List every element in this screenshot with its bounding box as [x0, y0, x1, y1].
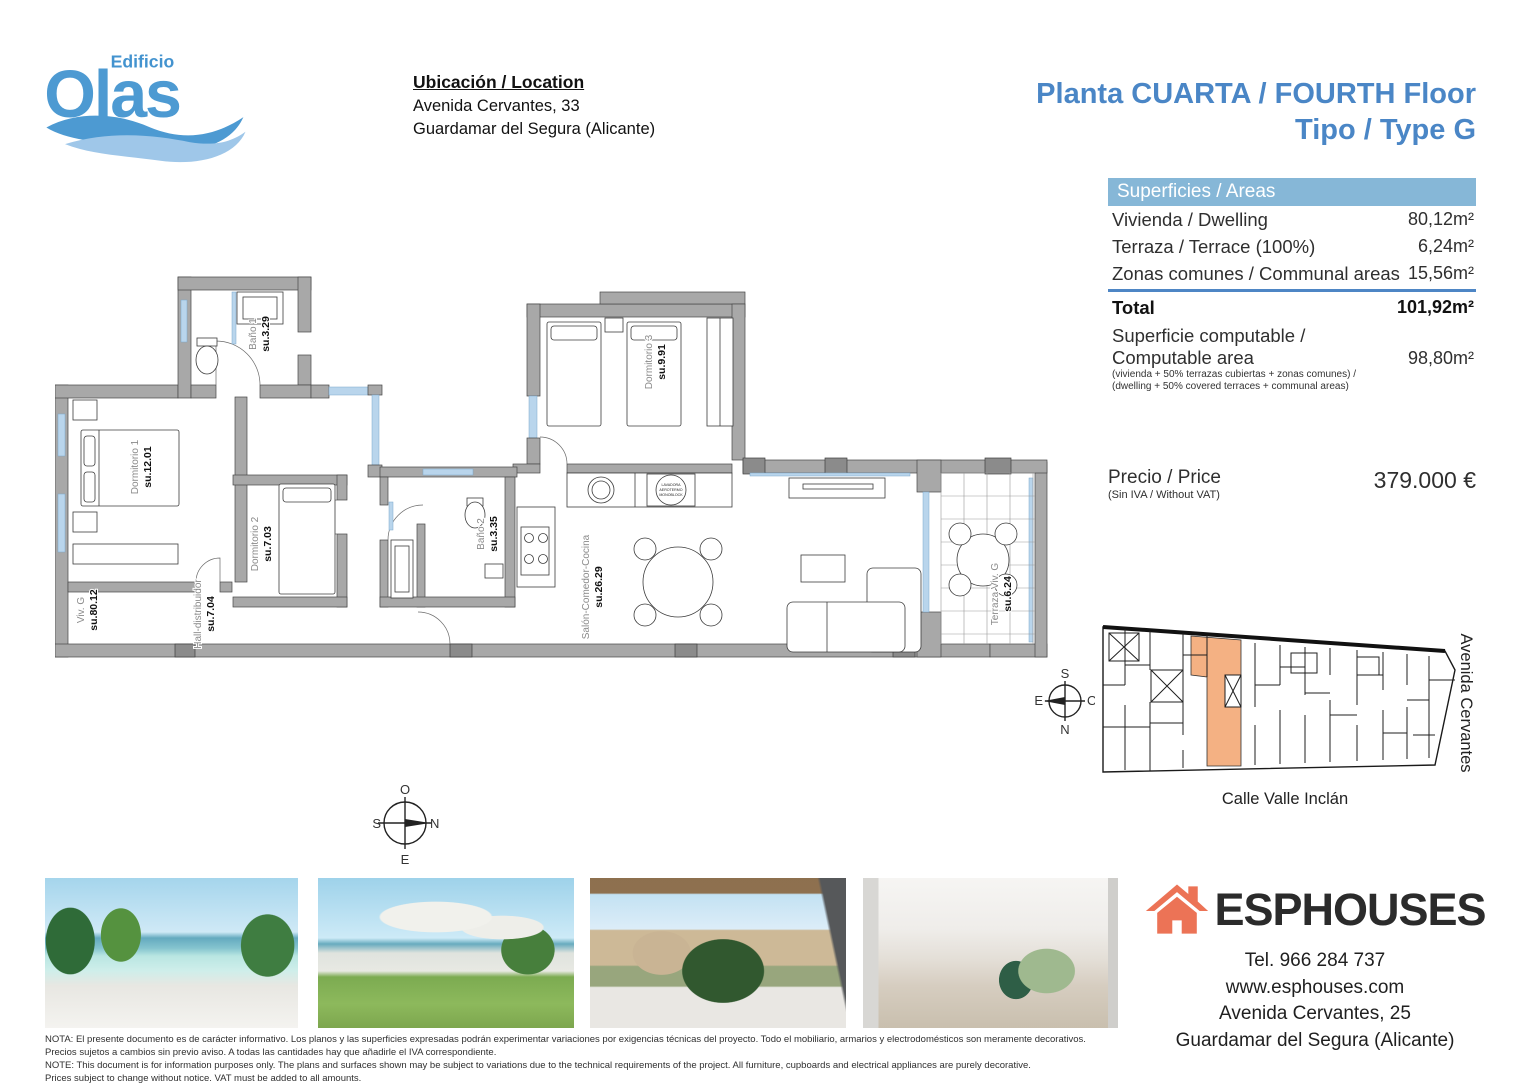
house-icon	[1144, 880, 1210, 940]
svg-text:S: S	[372, 816, 381, 831]
aerotermo-equipment-label: LAVADORA AEROTERMO MONOBLOCK	[659, 483, 683, 497]
svg-text:LAVADORA: LAVADORA	[661, 483, 681, 487]
svg-text:AEROTERMO: AEROTERMO	[659, 488, 682, 492]
area-row-value: 80,12m²	[1408, 209, 1474, 230]
disclaimer-block: NOTA: El presente documento es de caráct…	[45, 1033, 1485, 1085]
street-label-avenida-cervantes: Avenida Cervantes	[1456, 618, 1475, 788]
svg-text:su.80.12: su.80.12	[88, 589, 100, 631]
agency-name: ESPHOUSES	[1214, 884, 1485, 936]
computable-label-line2: Computable area	[1112, 347, 1305, 369]
location-address-line2: Guardamar del Segura (Alicante)	[413, 120, 713, 139]
svg-text:Baño 2: Baño 2	[476, 518, 487, 550]
svg-text:Dormitorio 3: Dormitorio 3	[644, 334, 655, 389]
room-label-dormitorio2: Dormitorio 2 su.7.03	[250, 516, 274, 571]
compass-rose-main: O S N E	[368, 783, 443, 867]
price-value: 379.000 €	[1374, 467, 1476, 501]
location-title: Ubicación / Location	[413, 72, 713, 93]
svg-text:E: E	[1035, 693, 1043, 708]
computable-value: 98,80m²	[1408, 348, 1474, 369]
svg-text:su.9.91: su.9.91	[656, 344, 668, 380]
location-address-line1: Avenida Cervantes, 33	[413, 97, 713, 116]
floor-plan-drawing: LAVADORA AEROTERMO MONOBLOCK Baño 1 su.3…	[55, 272, 1055, 677]
room-label-bano1: Baño 1 su.3.29	[248, 316, 272, 352]
compass-rose-siteplan: S E O N	[1035, 668, 1095, 738]
svg-text:Hall-distribuidor: Hall-distribuidor	[193, 579, 204, 649]
table-divider	[1108, 289, 1476, 292]
page-title: Planta CUARTA / FOURTH Floor Tipo / Type…	[1000, 76, 1476, 148]
computable-label-line1: Superficie computable /	[1112, 325, 1305, 347]
building-key-plan	[1095, 615, 1465, 790]
computable-note-line1: (vivienda + 50% terrazas cubiertas + zon…	[1108, 369, 1476, 382]
price-block: Precio / Price (Sin IVA / Without VAT) 3…	[1108, 467, 1476, 501]
svg-text:N: N	[430, 816, 439, 831]
area-row-dwelling: Vivienda / Dwelling 80,12m²	[1108, 206, 1476, 233]
price-label: Precio / Price	[1108, 467, 1221, 489]
photo-balcony-street-view	[590, 878, 846, 1028]
disclaimer-line-2: Precios sujetos a cambios sin previo avi…	[45, 1046, 1485, 1059]
area-row-label: Vivienda / Dwelling	[1112, 209, 1268, 231]
total-label: Total	[1112, 297, 1155, 319]
area-row-value: 6,24m²	[1418, 236, 1474, 257]
svg-text:O: O	[1087, 693, 1095, 708]
svg-text:su.6.24: su.6.24	[1002, 576, 1014, 612]
svg-text:O: O	[400, 783, 410, 797]
area-row-label: Terraza / Terrace (100%)	[1112, 236, 1315, 258]
room-label-hall: Hall-distribuidor su.7.04	[193, 579, 217, 649]
computable-block: Superficie computable / Computable area …	[1108, 323, 1476, 369]
svg-text:su.26.29: su.26.29	[593, 566, 605, 608]
page-title-line2: Tipo / Type G	[1000, 112, 1476, 148]
page-title-line1: Planta CUARTA / FOURTH Floor	[1000, 76, 1476, 112]
disclaimer-line-1: NOTA: El presente documento es de caráct…	[45, 1033, 1485, 1046]
total-value: 101,92m²	[1397, 297, 1474, 318]
svg-text:su.12.01: su.12.01	[142, 446, 154, 488]
disclaimer-line-3: NOTE: This document is for information p…	[45, 1059, 1485, 1072]
svg-text:Viv. G: Viv. G	[76, 597, 87, 624]
room-label-salon: Salón-Comedor-Cocina su.26.29	[581, 534, 605, 639]
photo-interior-living	[863, 878, 1118, 1028]
location-block: Ubicación / Location Avenida Cervantes, …	[413, 72, 713, 139]
computable-note-line2: (dwelling + 50% covered terraces + commu…	[1108, 381, 1476, 394]
edificio-olas-logo: Edificio Olas	[38, 28, 258, 168]
area-row-total: Total 101,92m²	[1108, 293, 1476, 323]
svg-text:su.7.03: su.7.03	[262, 526, 274, 562]
areas-table: Superficies / Areas Vivienda / Dwelling …	[1108, 178, 1476, 394]
area-row-value: 15,56m²	[1408, 263, 1474, 284]
svg-text:Salón-Comedor-Cocina: Salón-Comedor-Cocina	[581, 534, 592, 639]
photo-rooftop-pool	[45, 878, 298, 1028]
agency-phone: Tel. 966 284 737	[1125, 948, 1505, 975]
svg-text:su.3.35: su.3.35	[488, 516, 500, 552]
svg-text:N: N	[1060, 722, 1069, 737]
svg-text:Dormitorio 2: Dormitorio 2	[250, 516, 261, 571]
svg-text:su.7.04: su.7.04	[205, 596, 217, 632]
svg-text:Dormitorio 1: Dormitorio 1	[130, 439, 141, 494]
room-label-dormitorio1: Dormitorio 1 su.12.01	[130, 439, 154, 494]
disclaimer-line-4: Prices subject to change without notice.…	[45, 1072, 1485, 1085]
area-row-terrace: Terraza / Terrace (100%) 6,24m²	[1108, 233, 1476, 260]
compass-arrow	[1044, 697, 1065, 705]
room-label-viv-g: Viv. G su.80.12	[76, 589, 100, 631]
agency-address-line1: Avenida Cervantes, 25	[1125, 1001, 1505, 1028]
area-row-communal: Zonas comunes / Communal areas 15,56m²	[1108, 260, 1476, 287]
agency-website: www.esphouses.com	[1125, 975, 1505, 1002]
area-row-label: Zonas comunes / Communal areas	[1112, 263, 1400, 285]
agency-block: ESPHOUSES Tel. 966 284 737 www.esphouses…	[1125, 880, 1505, 1054]
areas-table-header: Superficies / Areas	[1108, 178, 1476, 206]
street-label-calle-valle-inclan: Calle Valle Inclán	[1150, 790, 1420, 809]
svg-text:Terraza Viv. G: Terraza Viv. G	[990, 563, 1001, 626]
svg-text:MONOBLOCK: MONOBLOCK	[659, 493, 683, 497]
room-label-bano2: Baño 2 su.3.35	[476, 516, 500, 552]
esphouses-logo: ESPHOUSES	[1125, 880, 1505, 940]
svg-text:S: S	[1061, 668, 1070, 681]
svg-text:Baño 1: Baño 1	[248, 318, 259, 350]
photo-rooftop-terrace	[318, 878, 574, 1028]
svg-text:E: E	[401, 852, 410, 867]
price-sublabel: (Sin IVA / Without VAT)	[1108, 489, 1221, 501]
svg-text:su.3.29: su.3.29	[260, 316, 272, 352]
